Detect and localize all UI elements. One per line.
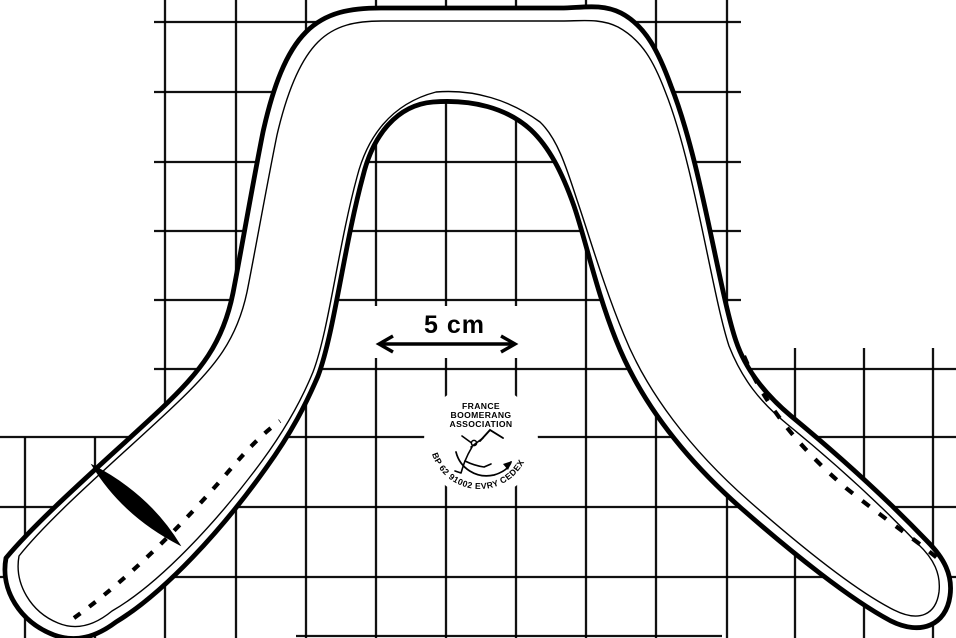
logo-line-3: ASSOCIATION <box>450 419 513 429</box>
plan-drawing: 5 cm FRANCE BOOMERANG ASSOCIATION BP 62 … <box>0 0 956 638</box>
scanned-boomerang-plan: 5 cm FRANCE BOOMERANG ASSOCIATION BP 62 … <box>0 0 956 638</box>
scale-label: 5 cm <box>424 311 485 339</box>
